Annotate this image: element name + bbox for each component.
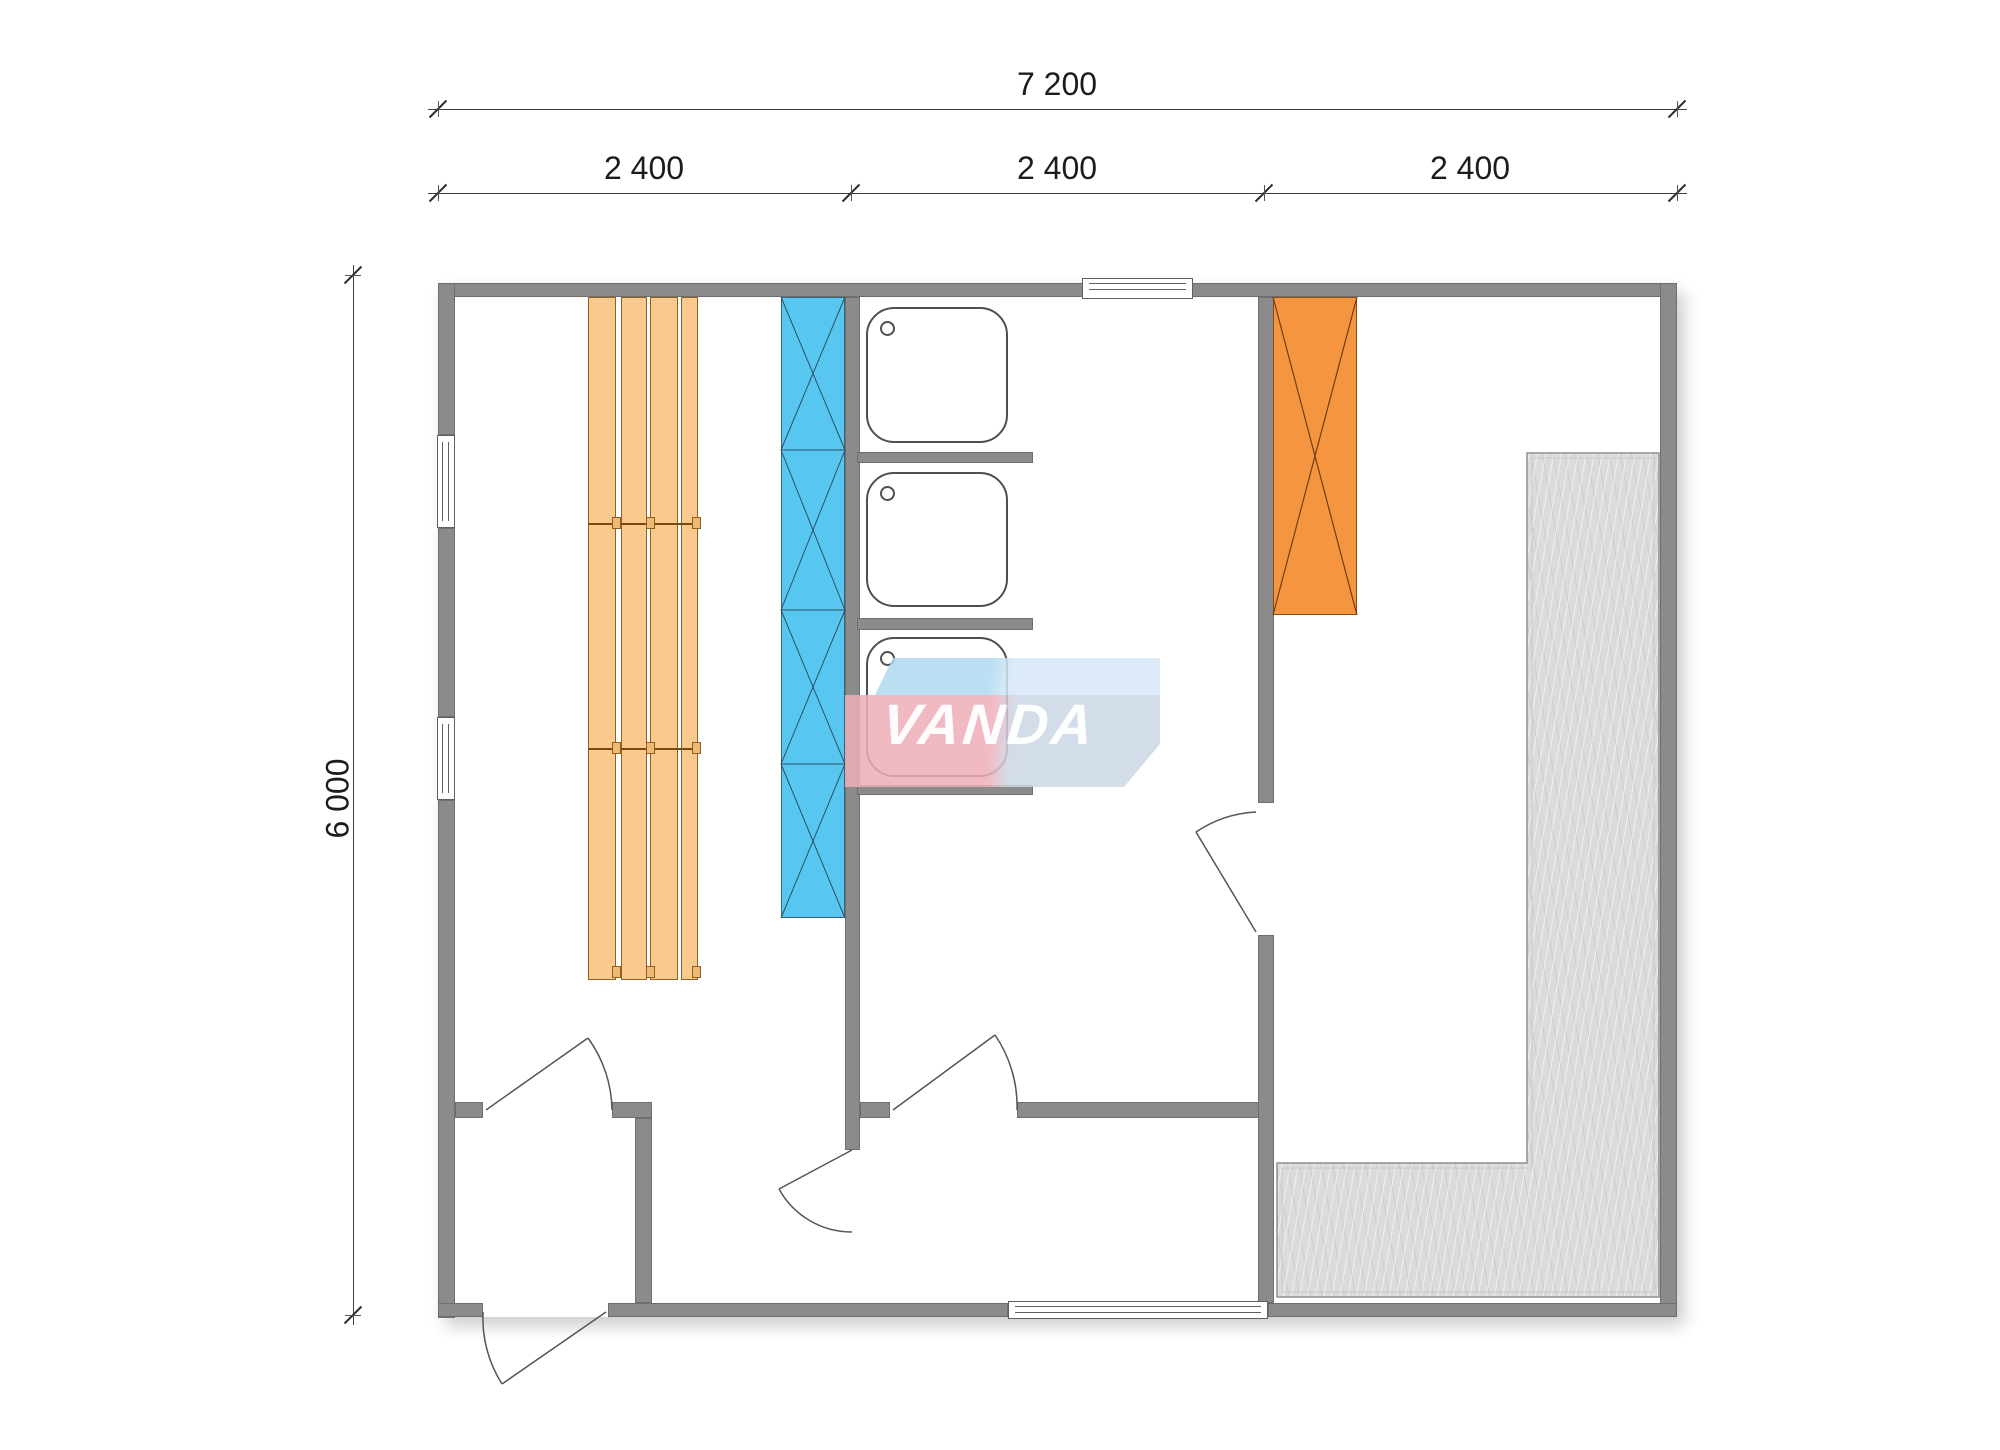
deck-inner-line (1282, 458, 1654, 1292)
dimension-witness (438, 101, 439, 117)
dimension-witness (851, 185, 852, 201)
dimension-line-segments (428, 193, 1687, 194)
dimension-label-total-width: 7 200 (957, 66, 1157, 103)
door-shower-room (893, 1035, 1017, 1110)
dimension-witness (1677, 101, 1678, 117)
dimension-label-segment-2: 2 400 (957, 150, 1157, 187)
dimension-label-height: 6 000 (320, 699, 357, 899)
vanda-logo-text: VANDA (853, 692, 1126, 758)
dimension-label-segment-1: 2 400 (544, 150, 744, 187)
dimension-line-total (428, 109, 1687, 110)
door-exterior-entrance (483, 1312, 606, 1384)
dimension-witness (1677, 185, 1678, 201)
door-sauna (486, 1038, 612, 1110)
door-dressing-room (1196, 812, 1256, 932)
deck-border (1277, 453, 1659, 1297)
stove-block-hatch (1273, 297, 1357, 615)
dimension-label-segment-3: 2 400 (1370, 150, 1570, 187)
vanda-banner-top (875, 658, 1160, 695)
dimension-witness (1264, 185, 1265, 201)
door-hall-passage (779, 1150, 852, 1232)
dimension-witness (438, 185, 439, 201)
dimension-witness (345, 1315, 361, 1316)
dimension-witness (345, 275, 361, 276)
heater-panel-hatch (781, 297, 845, 918)
dimension-line-height (353, 265, 354, 1325)
